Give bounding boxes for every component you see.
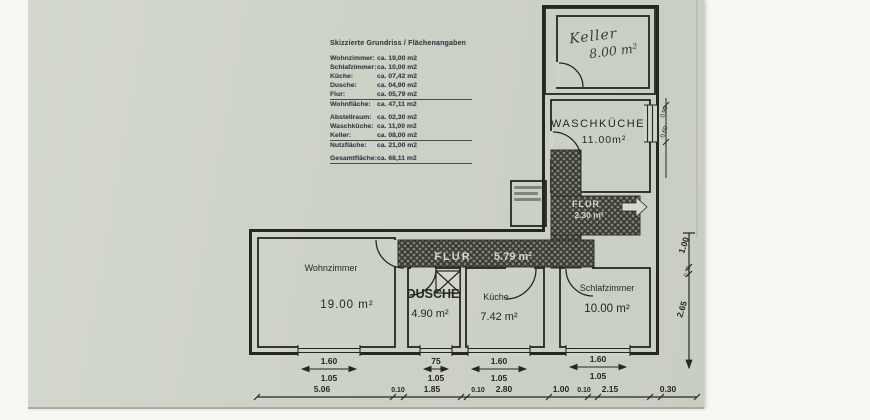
right-dimension-chain: 1.00 0.10 2.65 [674, 233, 695, 368]
room-area-schlafzimmer: 10.00 m² [584, 303, 630, 315]
dim-window2-width: 75 [431, 356, 441, 366]
room-wohnzimmer [258, 238, 395, 347]
dim-bottom-5: 2.80 [496, 384, 513, 394]
room-label-flur-main: FLUR [434, 251, 471, 263]
room-label-flur-small: FLUR [572, 199, 600, 209]
dim-window4-height: 1.05 [590, 371, 607, 381]
window-dusche [420, 345, 452, 356]
room-area-wohnzimmer: 19.00 m² [320, 299, 373, 311]
window-waschkueche [644, 105, 657, 142]
dim-window3-height: 1.05 [491, 373, 508, 383]
room-label-schlafzimmer: Schlafzimmer [580, 283, 635, 293]
dim-wk-window-1: 0.90 [660, 105, 670, 119]
dim-window2-height: 1.05 [428, 373, 445, 383]
waschkueche-window-dimension: 0.90 0.60 [660, 98, 670, 178]
dim-right-3: 2.65 [674, 300, 689, 319]
room-label-waschkueche: WASCHKÜCHE [551, 118, 645, 130]
dim-bottom-4: 0.10 [471, 387, 485, 394]
dim-wk-window-2: 0.60 [660, 125, 670, 139]
room-area-flur-small: 2.30 m² [574, 210, 603, 220]
window-dimension-row: 1.60 1.05 75 1.05 1.60 1.05 1.60 1.05 [302, 354, 626, 383]
tiny-text-line [514, 198, 541, 201]
dim-window3-width: 1.60 [491, 356, 508, 366]
room-label-kueche: Küche [483, 292, 509, 302]
dim-window1-width: 1.60 [321, 356, 338, 366]
floorplan-drawing: WASCHKÜCHE 11.00m² FLUR 2.30 m² FLUR 5.7… [0, 0, 870, 420]
dim-bottom-8: 2.15 [602, 384, 619, 394]
room-area-flur-main: 5.79 m² [494, 251, 532, 263]
dim-bottom-7: 0.10 [577, 387, 591, 394]
dim-bottom-1: 5.06 [314, 384, 331, 394]
room-label-wohnzimmer: Wohnzimmer [305, 263, 358, 273]
dim-bottom-6: 1.00 [553, 384, 570, 394]
room-kueche [466, 268, 544, 347]
tiny-text-line [514, 186, 542, 189]
dim-bottom-2: 0.10 [391, 387, 405, 394]
dim-window1-height: 1.05 [321, 373, 338, 383]
closet-tiny-text-lines [514, 186, 542, 204]
tiny-text-line [514, 192, 538, 195]
bottom-dimension-chain: 5.06 0.10 1.85 0.10 2.80 1.00 0.10 2.15 … [254, 384, 700, 400]
room-area-dusche: 4.90 m² [411, 308, 449, 320]
window-kueche [468, 345, 530, 356]
room-area-waschkueche: 11.00m² [582, 134, 627, 146]
door-arc-kueche [506, 269, 536, 299]
room-label-dusche: DUSCHE [407, 287, 460, 301]
window-wohnzimmer [298, 345, 360, 356]
scanned-floorplan-page: Skizzierte Grundriss / Flächenangaben Wo… [0, 0, 870, 420]
dim-bottom-3: 1.85 [424, 384, 441, 394]
dim-window4-width: 1.60 [590, 354, 607, 364]
room-area-kueche: 7.42 m² [480, 311, 518, 323]
dim-bottom-9: 0.30 [660, 384, 677, 394]
door-arc-keller [559, 63, 583, 87]
